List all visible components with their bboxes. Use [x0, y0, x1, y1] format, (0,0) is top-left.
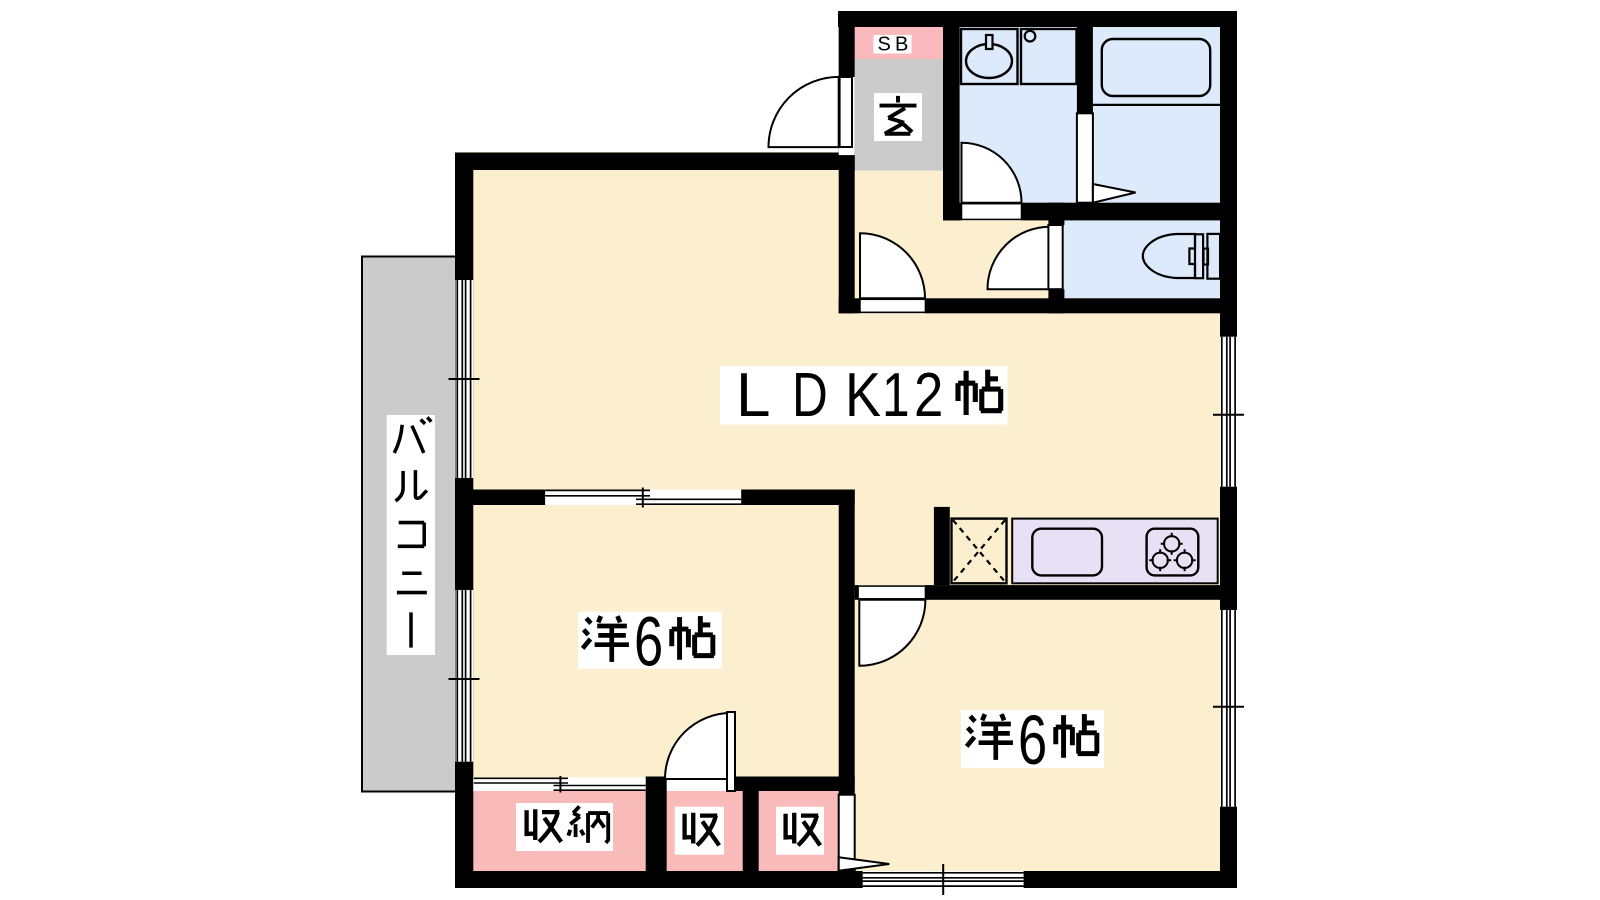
svg-text:2: 2: [914, 361, 943, 430]
svg-text:6: 6: [634, 603, 663, 681]
svg-text:B: B: [895, 34, 908, 56]
svg-text:D: D: [792, 360, 828, 430]
svg-text:L: L: [736, 361, 770, 430]
svg-text:1: 1: [882, 360, 910, 430]
svg-text:K: K: [845, 361, 881, 430]
svg-text:S: S: [878, 34, 891, 56]
svg-text:6: 6: [1018, 702, 1047, 780]
